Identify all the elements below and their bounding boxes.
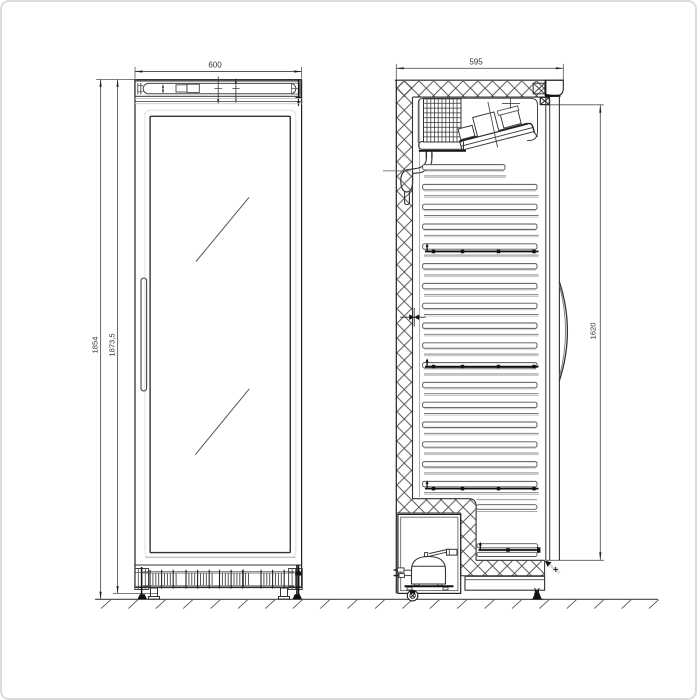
svg-text:600: 600 <box>208 61 222 70</box>
svg-text:1854: 1854 <box>91 337 100 354</box>
svg-text:1620: 1620 <box>589 323 598 340</box>
svg-text:1873,5: 1873,5 <box>108 333 117 356</box>
svg-text:595: 595 <box>469 58 483 67</box>
